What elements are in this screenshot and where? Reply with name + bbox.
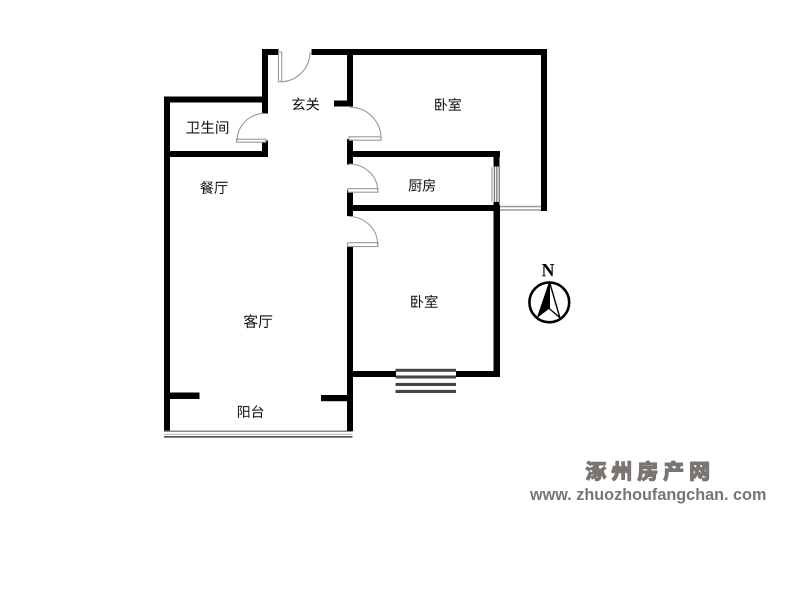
svg-text:www. zhuozhoufangchan. com: www. zhuozhoufangchan. com — [529, 485, 766, 504]
